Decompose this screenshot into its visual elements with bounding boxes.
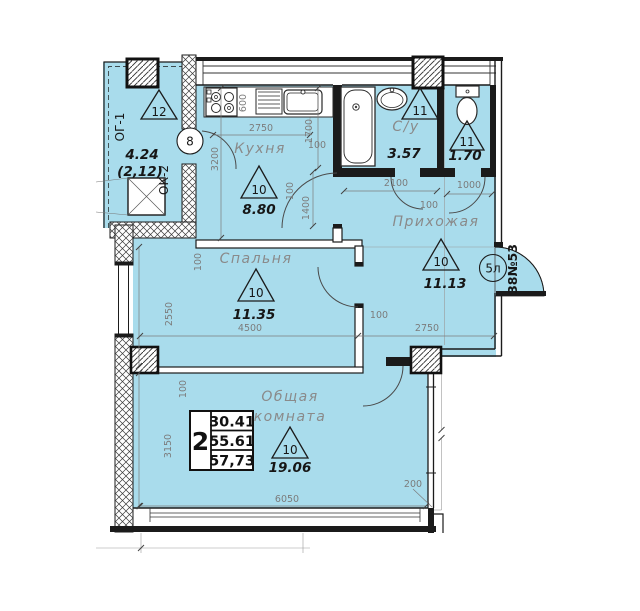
kitchen-area: 8.80 [242,202,275,218]
balcony-area-reduced: (2,12) [117,164,163,180]
stamp-living-area: 30.41 [209,415,255,431]
washbasin-icon [377,88,407,110]
svg-text:11: 11 [412,104,427,118]
living-area: 19.06 [269,460,312,476]
bathroom-area: 3.57 [387,146,421,162]
dim-living-depth: 3150 [163,434,174,458]
dim-bedroom-width: 4500 [238,323,262,334]
balcony-area: 4.24 [124,147,158,163]
stamp-total-area: 57,73 [209,454,255,470]
kitchen-counter [204,87,333,117]
hallway-area: 11.13 [424,276,467,292]
svg-text:11: 11 [459,135,474,149]
top-wall [196,57,503,85]
apartment-stamp: 2 30.41 55.61 57,73 [190,411,255,470]
living-label-line1: Общая [261,389,318,405]
stamp-room-count: 2 [192,427,209,456]
bedroom-label: Спальня [220,251,293,267]
dim-bedroom-depth: 2550 [164,302,175,326]
living-right-window [426,373,436,508]
bottom-wall [110,508,443,533]
bedroom-area: 11.35 [233,307,276,323]
svg-text:10: 10 [251,183,266,197]
svg-text:10: 10 [282,443,297,457]
dim-toilet-door: 1000 [457,180,481,191]
sink-icon [256,89,322,114]
hallway-label: Прихожая [393,214,480,230]
floor-plan-page: 2750 2100 1000 100 100 100 4500 2750 605… [0,0,640,607]
bathroom-label: С/у [392,119,419,135]
floor-plan-drawing: 2750 2100 1000 100 100 100 4500 2750 605… [0,0,640,607]
stamp-apartment-area: 55.61 [209,434,255,450]
dim-200: 200 [404,479,422,490]
toilet-area: 1.70 [448,148,481,164]
entrance-door-marker: 5л [485,262,500,276]
toilet-icon [456,86,479,125]
dim-100-d: 100 [193,253,204,271]
dim-hallway-width: 2750 [415,323,439,334]
dim-kitchen-door: 1400 [301,196,312,220]
dim-100-b: 100 [420,200,438,211]
balcony-window-label: ОК-2 [157,165,171,195]
dim-100-f: 100 [178,380,189,398]
dim-100-c: 100 [370,310,388,321]
balcony-door-marker: 8 [186,135,194,149]
dim-100-e: 100 [285,182,296,200]
kitchen-label: Кухня [234,141,286,157]
bedroom-window [115,262,133,337]
bathtub-icon [341,87,375,166]
dim-kitchen-width: 2750 [249,123,273,134]
balcony-glazing-label: ОГ-1 [113,113,127,142]
svg-text:10: 10 [433,255,448,269]
living-label-line2: комната [254,409,327,425]
svg-text:10: 10 [248,286,263,300]
dim-living-width: 6050 [275,494,299,505]
dim-kitchen-depth: 3200 [210,147,221,171]
dim-1700: 1700 [304,119,315,143]
dim-counter-600: 600 [238,94,249,112]
dim-bath-width: 2100 [384,178,408,189]
apartment-number-label: 38№53 [505,244,520,294]
svg-text:12: 12 [151,105,166,119]
